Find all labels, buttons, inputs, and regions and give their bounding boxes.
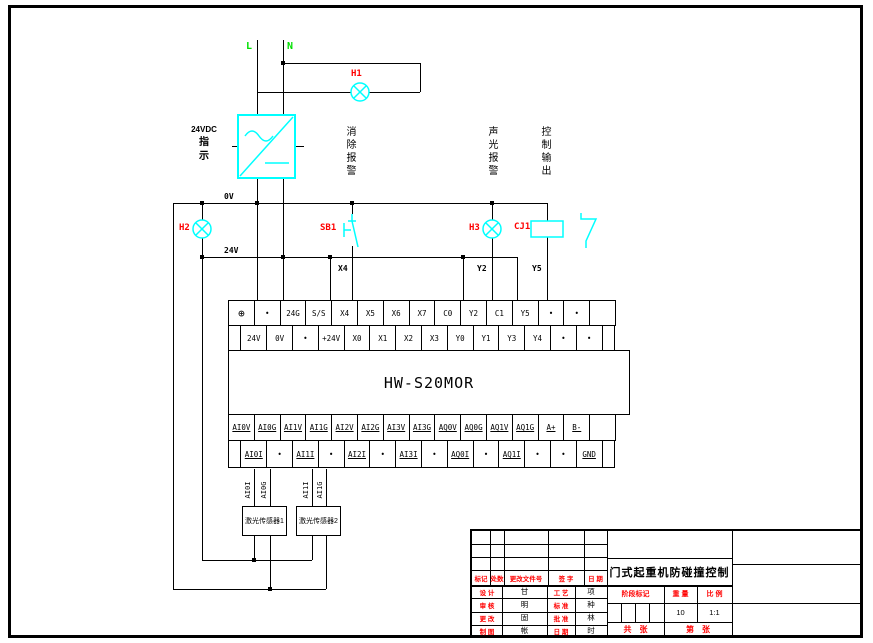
terminal-cell: Y4: [524, 325, 551, 351]
title-block: 标记处数更改文件号签 字日 期 设 计甘工 艺项审 核明标 准种更 改固批 准林…: [470, 529, 860, 635]
drawing-canvas: L N H1 H2 SB1 H3 CJ1 24VDC 指 示 消除报警 声光报警…: [0, 0, 873, 643]
sign-label: 标 准: [547, 598, 575, 611]
lamp-h3-icon: [483, 220, 501, 238]
revision-header-cell: 标记: [472, 570, 490, 585]
terminal-cell: S/S: [305, 300, 332, 326]
terminal-cell: AI3G: [409, 414, 436, 441]
wire-label-y5: Y5: [532, 265, 542, 273]
lamp-h1-tag: H1: [351, 70, 362, 79]
pin-label-ai0i: AI0I: [243, 475, 253, 505]
terminal-cell: AI0G: [254, 414, 281, 441]
terminal-cell: [589, 300, 616, 326]
sign-label: 设 计: [472, 585, 502, 598]
revision-header-cell: 签 字: [548, 570, 584, 585]
terminal-cell: AI2V: [331, 414, 358, 441]
plc-model-box: HW-S20MOR: [228, 350, 630, 415]
revision-header-cell: 更改文件号: [504, 570, 548, 585]
wire-label-0v: 0V: [224, 193, 234, 201]
terminal-cell: •: [538, 300, 565, 326]
terminal-cell: X2: [395, 325, 422, 351]
stage-header-cell: 比 例: [697, 585, 732, 603]
terminal-cell: •: [473, 440, 500, 468]
terminal-cell: AI1V: [280, 414, 307, 441]
psu-note-line2: 指: [190, 138, 218, 148]
wire-label-24v: 24V: [224, 247, 238, 255]
terminal-cell: AI3V: [383, 414, 410, 441]
terminal-cell: [228, 325, 241, 351]
sign-label: 更 改: [472, 611, 502, 624]
laser-sensor-2-box: 激光传感器2: [296, 506, 341, 536]
terminal-cell: C1: [486, 300, 513, 326]
sign-value: 固: [502, 611, 547, 624]
pushbutton-sb1-icon: [344, 214, 360, 247]
lamp-h2-tag: H2: [179, 224, 190, 233]
laser-sensor-1-label: 激光传感器1: [245, 516, 284, 526]
terminal-cell: Y0: [447, 325, 474, 351]
wire-label-x4: X4: [338, 265, 348, 273]
sign-label: 批 准: [547, 611, 575, 624]
psu-note-line3: 示: [190, 152, 218, 162]
plc-model-label: HW-S20MOR: [384, 374, 474, 392]
terminal-cell: 24V: [240, 325, 267, 351]
sheet-number: 第 张: [664, 622, 732, 637]
revision-header-cell: 处数: [490, 570, 504, 585]
terminal-cell: Y3: [498, 325, 525, 351]
sign-label: 日 期: [547, 624, 575, 637]
title-block-line: [472, 557, 607, 558]
terminal-cell: GND: [576, 440, 603, 468]
terminal-cell: AI3I: [395, 440, 422, 468]
lamp-h1-icon: [351, 83, 369, 101]
power-supply-symbol: [238, 115, 295, 178]
scale-value: 1:1: [697, 603, 732, 622]
lamp-h3-tag: H3: [469, 224, 480, 233]
contact-symbol-icon: [581, 213, 596, 248]
terminal-cell: 24G: [280, 300, 307, 326]
terminal-cell: X1: [369, 325, 396, 351]
terminal-cell: AI2G: [357, 414, 384, 441]
terminal-cell: X3: [421, 325, 448, 351]
terminal-cell: •: [550, 325, 577, 351]
sign-value: 时: [575, 624, 607, 637]
terminal-cell: •: [266, 440, 293, 468]
neutral-n-label: N: [287, 42, 293, 52]
sign-value: 林: [575, 611, 607, 624]
title-block-line: [732, 603, 862, 604]
psu-note: 24VDC 指 示: [190, 126, 218, 166]
terminal-cell: AQ0I: [447, 440, 474, 468]
terminal-cell: AI0V: [228, 414, 255, 441]
terminal-cell: 0V: [266, 325, 293, 351]
stage-header-cell: 阶段标记: [607, 585, 664, 603]
laser-sensor-2-label: 激光传感器2: [299, 516, 338, 526]
title-block-line: [472, 544, 607, 545]
terminal-cell: +24V: [318, 325, 345, 351]
sign-value: 甘: [502, 585, 547, 598]
note-alarm-reset: 消除报警: [344, 126, 354, 178]
title-block-line: [635, 603, 636, 622]
terminal-cell: B-: [563, 414, 590, 441]
laser-sensor-1-box: 激光传感器1: [242, 506, 287, 536]
sign-value: 种: [575, 598, 607, 611]
terminal-cell: •: [318, 440, 345, 468]
sign-value: 帐: [502, 624, 547, 637]
title-block-line: [621, 603, 622, 622]
terminal-cell: •: [563, 300, 590, 326]
terminal-cell: A+: [538, 414, 565, 441]
note-sound-light-alarm: 声光报警: [486, 126, 496, 178]
sign-label: 工 艺: [547, 585, 575, 598]
terminal-cell: AI1G: [305, 414, 332, 441]
terminal-cell: [602, 440, 615, 468]
title-block-line: [732, 531, 733, 637]
terminal-cell: AQ1I: [498, 440, 525, 468]
terminal-row-row_d: AI0I•AI1I•AI2I•AI3I•AQ0I•AQ1I••GND: [228, 440, 630, 468]
title-block-line: [732, 564, 862, 565]
title-block-line: [649, 603, 650, 622]
terminal-cell: X5: [357, 300, 384, 326]
terminal-row-row_b: 24V0V•+24VX0X1X2X3Y0Y1Y3Y4••: [228, 325, 630, 351]
terminal-cell: AI1I: [292, 440, 319, 468]
psu-note-line1: 24VDC: [190, 126, 218, 134]
terminal-cell: ⊕: [228, 300, 255, 326]
terminal-row-row_c: AI0VAI0GAI1VAI1GAI2VAI2GAI3VAI3GAQ0VAQ0G…: [228, 414, 630, 441]
phase-l-label: L: [246, 42, 252, 52]
sign-label: 制 图: [472, 624, 502, 637]
terminal-cell: •: [254, 300, 281, 326]
terminal-cell: [602, 325, 615, 351]
terminal-cell: Y1: [473, 325, 500, 351]
terminal-cell: Y2: [460, 300, 487, 326]
terminal-cell: AQ0V: [434, 414, 461, 441]
terminal-cell: •: [421, 440, 448, 468]
sheet-total: 共 张: [607, 622, 664, 637]
terminal-cell: X7: [409, 300, 436, 326]
pushbutton-sb1-tag: SB1: [320, 224, 336, 233]
terminal-cell: X0: [344, 325, 371, 351]
relay-cj1-tag: CJ1: [514, 223, 530, 232]
sign-label: 审 核: [472, 598, 502, 611]
terminal-cell: •: [292, 325, 319, 351]
relay-coil-cj1-icon: [531, 221, 563, 237]
terminal-cell: Y5: [512, 300, 539, 326]
terminal-cell: X4: [331, 300, 358, 326]
sign-value: 项: [575, 585, 607, 598]
pin-label-ai1g: AI1G: [315, 475, 325, 505]
terminal-cell: AI0I: [240, 440, 267, 468]
terminal-cell: [589, 414, 616, 441]
terminal-cell: X6: [383, 300, 410, 326]
terminal-cell: •: [576, 325, 603, 351]
terminal-row-row_a: ⊕•24GS/SX4X5X6X7C0Y2C1Y5••: [228, 300, 630, 326]
revision-header-cell: 日 期: [584, 570, 607, 585]
terminal-cell: •: [550, 440, 577, 468]
lamp-h2-icon: [193, 220, 211, 238]
terminal-cell: AQ0G: [460, 414, 487, 441]
terminal-cell: AI2I: [344, 440, 371, 468]
terminal-cell: C0: [434, 300, 461, 326]
drawing-title: 门式起重机防碰撞控制: [607, 558, 732, 585]
weight-value: 10: [664, 603, 697, 622]
terminal-cell: [228, 440, 241, 468]
pin-label-ai0g: AI0G: [259, 475, 269, 505]
terminal-cell: •: [524, 440, 551, 468]
terminal-cell: AQ1V: [486, 414, 513, 441]
terminal-cell: AQ1G: [512, 414, 539, 441]
note-control-output: 控制输出: [539, 126, 549, 178]
stage-header-cell: 重 量: [664, 585, 697, 603]
wire-label-y2: Y2: [477, 265, 487, 273]
pin-label-ai1i: AI1I: [301, 475, 311, 505]
terminal-cell: •: [369, 440, 396, 468]
sign-value: 明: [502, 598, 547, 611]
